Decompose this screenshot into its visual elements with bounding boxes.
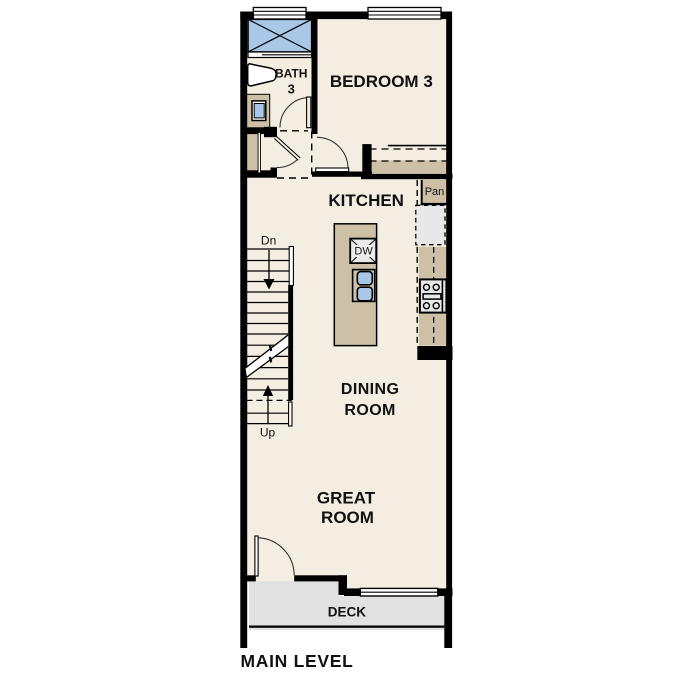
svg-text:ROOM: ROOM xyxy=(321,508,374,527)
svg-text:GREAT: GREAT xyxy=(317,488,376,507)
svg-text:ROOM: ROOM xyxy=(344,402,395,419)
svg-text:BATH: BATH xyxy=(275,67,307,81)
svg-text:Pan: Pan xyxy=(425,186,445,198)
svg-text:Up: Up xyxy=(260,426,276,440)
svg-text:DECK: DECK xyxy=(328,605,367,620)
svg-text:KITCHEN: KITCHEN xyxy=(328,191,404,210)
svg-text:DINING: DINING xyxy=(341,381,399,398)
svg-text:DW: DW xyxy=(354,246,373,258)
svg-text:BEDROOM 3: BEDROOM 3 xyxy=(330,72,433,91)
svg-text:Dn: Dn xyxy=(261,234,276,248)
svg-text:3: 3 xyxy=(288,82,295,97)
svg-text:MAIN LEVEL: MAIN LEVEL xyxy=(241,651,354,671)
